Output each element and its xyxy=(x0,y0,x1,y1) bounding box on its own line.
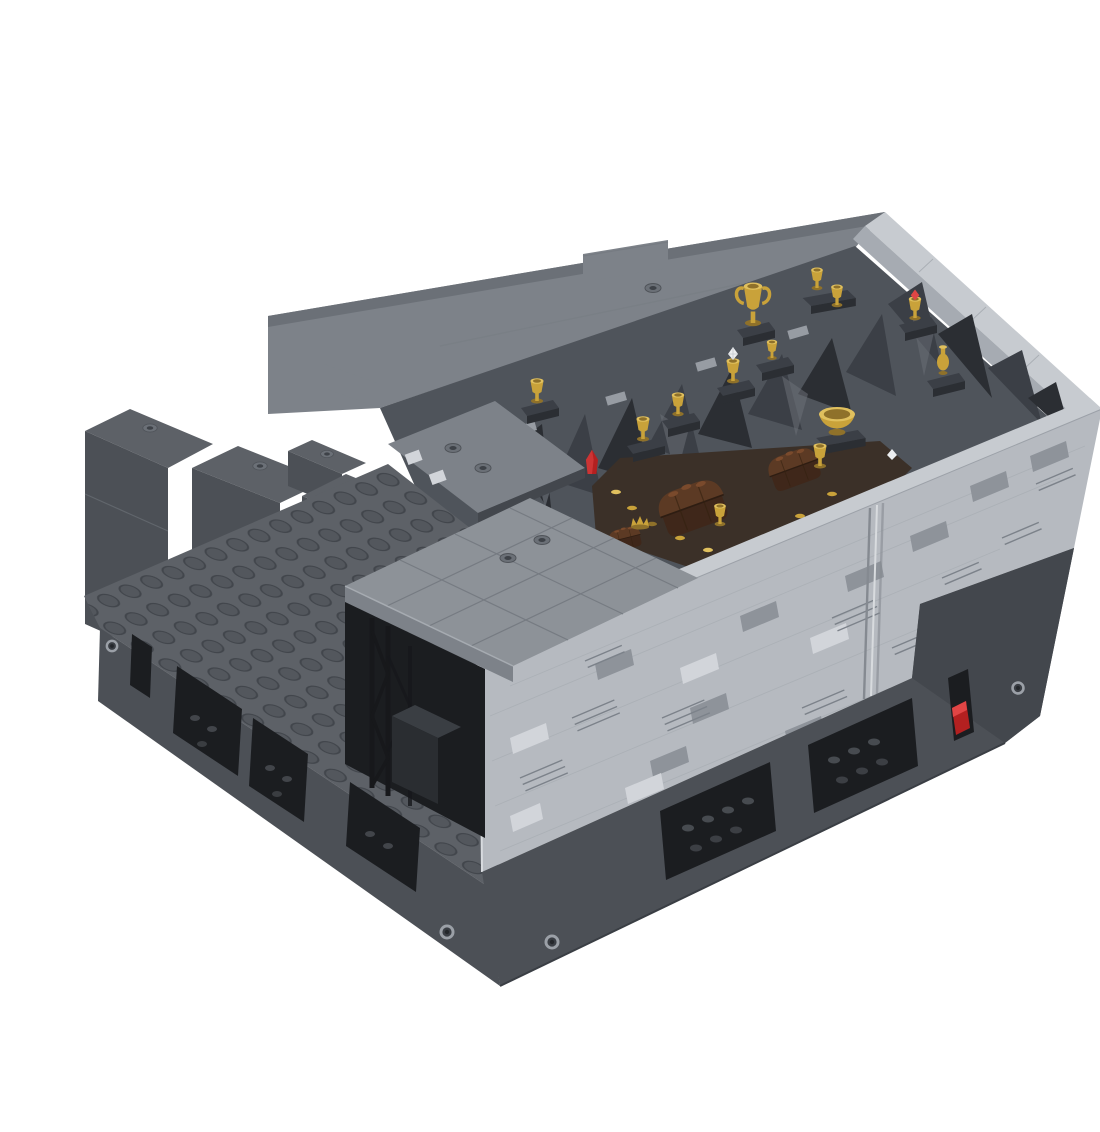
gold-goblet-4 xyxy=(767,340,777,360)
gold-goblet-1 xyxy=(531,378,544,403)
gold-goblet-8 xyxy=(714,503,726,526)
roof-hollow-stud xyxy=(500,554,516,563)
gold-goblet-5 xyxy=(811,267,823,290)
hollow-stud xyxy=(475,464,491,473)
lego-model-photo: LEGO MOC stone treasure vault model - is… xyxy=(40,16,1100,1116)
gold-goblet-2 xyxy=(637,416,650,441)
technic-pin xyxy=(545,935,560,950)
technic-pin xyxy=(106,640,119,653)
technic-pin xyxy=(1011,681,1025,695)
gold-goblet-6 xyxy=(831,284,843,307)
technic-pin xyxy=(440,925,455,940)
gold-goblet-7 xyxy=(814,443,827,468)
hollow-stud xyxy=(445,444,461,453)
hollow-stud xyxy=(321,450,334,457)
hollow-stud xyxy=(253,462,267,470)
lego-model-render xyxy=(40,16,1100,1116)
gold-goblet-3 xyxy=(672,392,684,416)
roof-hollow-stud xyxy=(534,536,550,545)
hollow-stud xyxy=(143,424,157,432)
hollow-stud xyxy=(645,284,661,293)
